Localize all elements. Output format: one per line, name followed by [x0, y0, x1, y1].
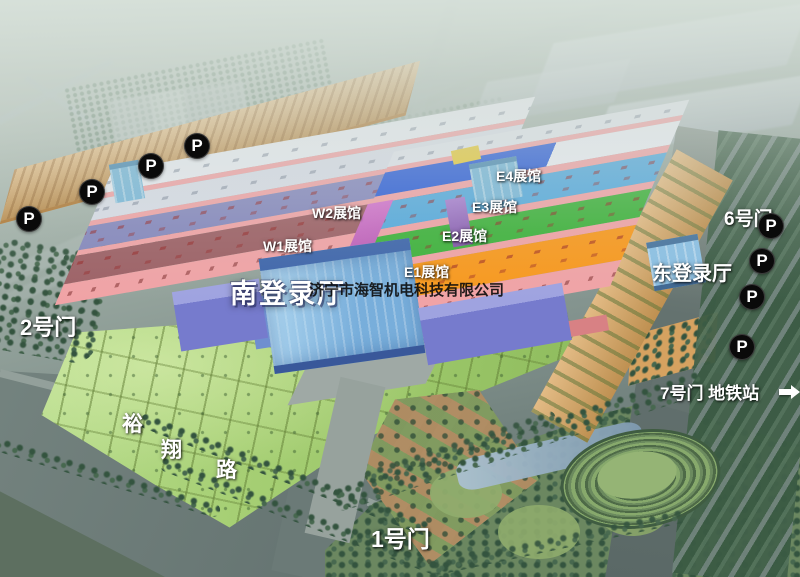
hall-label-e4: E4展馆	[496, 166, 541, 186]
road-name-char: 裕	[122, 408, 143, 438]
gate7-metro-label: 7号门 地铁站	[660, 379, 759, 404]
parking-icon: P	[729, 334, 755, 360]
gate2-label: 2号门	[20, 310, 76, 342]
parking-icon: P	[138, 153, 164, 179]
road-name-char: 翔	[161, 434, 182, 464]
right-arrow-icon	[779, 389, 791, 395]
road-name-char: 路	[216, 454, 237, 484]
parking-icon: P	[739, 284, 765, 310]
east-registration-hall-label: 东登录厅	[652, 257, 732, 286]
parking-icon: P	[749, 248, 775, 274]
hall-label-e3: E3展馆	[472, 197, 517, 217]
parking-icon: P	[758, 213, 784, 239]
hall-label-w2: W2展馆	[312, 203, 361, 223]
parking-icon: P	[16, 206, 42, 232]
parking-icon: P	[184, 133, 210, 159]
hall-label-w1: W1展馆	[263, 236, 312, 256]
parking-icon: P	[79, 179, 105, 205]
gate1-label: 1号门	[371, 520, 430, 554]
exhibition-center-map: W2展馆 W1展馆 E4展馆 E3展馆 E2展馆 E1展馆 南登录厅 东登录厅 …	[0, 0, 800, 577]
hall-label-e2: E2展馆	[442, 226, 487, 246]
company-watermark: 济宁市海智机电科技有限公司	[309, 279, 504, 300]
